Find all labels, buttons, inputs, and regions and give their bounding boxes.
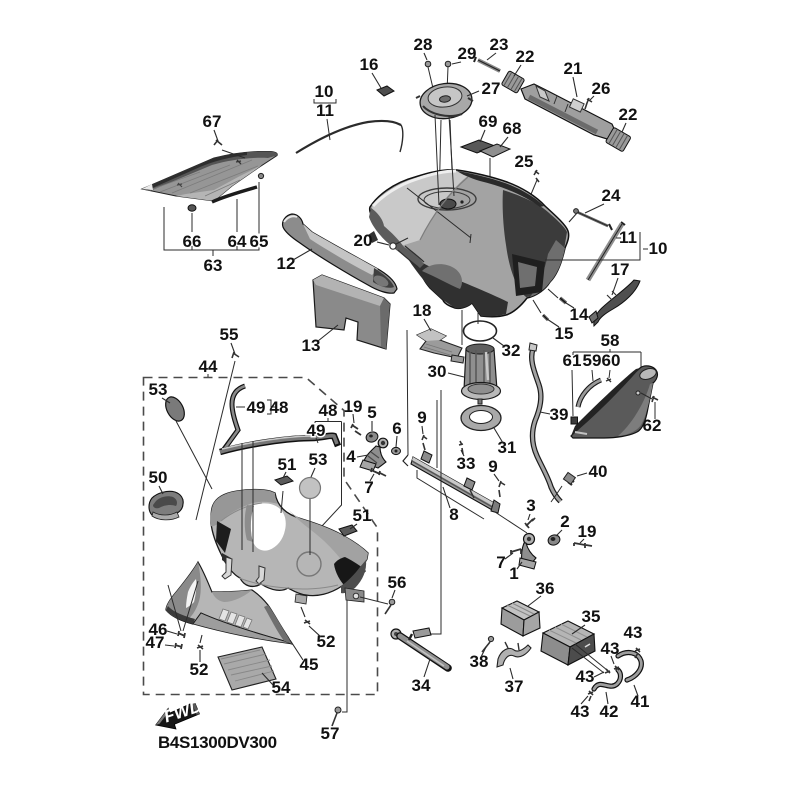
svg-text:25: 25 <box>515 152 534 171</box>
svg-text:62: 62 <box>643 416 662 435</box>
svg-text:4: 4 <box>346 447 356 466</box>
svg-text:55: 55 <box>220 325 239 344</box>
svg-text:43: 43 <box>576 667 595 686</box>
svg-text:52: 52 <box>190 660 209 679</box>
svg-text:20: 20 <box>354 231 373 250</box>
svg-text:6: 6 <box>392 419 401 438</box>
svg-text:53: 53 <box>309 450 328 469</box>
svg-text:7: 7 <box>496 553 505 572</box>
svg-text:B4S1300DV300: B4S1300DV300 <box>158 733 277 752</box>
svg-text:58: 58 <box>601 331 620 350</box>
svg-text:2: 2 <box>560 512 569 531</box>
svg-text:10: 10 <box>649 239 668 258</box>
svg-text:11: 11 <box>619 228 637 247</box>
svg-text:56: 56 <box>388 573 407 592</box>
svg-text:49: 49 <box>247 398 266 417</box>
svg-text:64: 64 <box>228 232 247 251</box>
svg-text:8: 8 <box>449 505 458 524</box>
svg-text:12: 12 <box>277 254 296 273</box>
svg-text:45: 45 <box>300 655 319 674</box>
svg-text:27: 27 <box>482 79 501 98</box>
svg-text:14: 14 <box>570 305 589 324</box>
svg-text:19: 19 <box>578 522 597 541</box>
svg-text:16: 16 <box>360 55 379 74</box>
svg-text:57: 57 <box>321 724 340 743</box>
svg-text:47: 47 <box>146 633 165 652</box>
svg-text:38: 38 <box>470 652 489 671</box>
svg-text:32: 32 <box>502 341 521 360</box>
svg-text:13: 13 <box>302 336 321 355</box>
svg-text:44: 44 <box>199 357 218 376</box>
svg-text:10: 10 <box>315 82 334 101</box>
svg-text:37: 37 <box>505 677 524 696</box>
svg-text:42: 42 <box>600 702 619 721</box>
svg-text:50: 50 <box>149 468 168 487</box>
svg-text:15: 15 <box>555 324 574 343</box>
svg-text:7: 7 <box>364 478 373 497</box>
svg-text:39: 39 <box>550 405 569 424</box>
svg-text:17: 17 <box>611 260 630 279</box>
svg-text:36: 36 <box>536 579 555 598</box>
svg-text:34: 34 <box>412 676 431 695</box>
svg-text:61: 61 <box>563 351 582 370</box>
svg-text:41: 41 <box>631 692 650 711</box>
svg-text:48: 48 <box>319 401 338 420</box>
svg-text:63: 63 <box>204 256 223 275</box>
svg-text:26: 26 <box>592 79 611 98</box>
svg-text:21: 21 <box>564 59 583 78</box>
svg-text:22: 22 <box>516 47 535 66</box>
svg-text:23: 23 <box>490 35 509 54</box>
svg-text:24: 24 <box>602 186 621 205</box>
svg-text:65: 65 <box>250 232 269 251</box>
svg-text:51: 51 <box>353 506 372 525</box>
svg-text:53: 53 <box>149 380 168 399</box>
svg-text:5: 5 <box>367 403 376 422</box>
svg-text:43: 43 <box>601 639 620 658</box>
svg-text:9: 9 <box>488 457 497 476</box>
svg-text:31: 31 <box>498 438 517 457</box>
svg-text:29: 29 <box>458 44 477 63</box>
svg-text:66: 66 <box>183 232 202 251</box>
svg-text:9: 9 <box>417 408 426 427</box>
svg-text:48: 48 <box>270 398 289 417</box>
svg-text:40: 40 <box>589 462 608 481</box>
svg-text:67: 67 <box>203 112 222 131</box>
svg-text:49: 49 <box>307 421 326 440</box>
svg-text:11: 11 <box>316 101 334 120</box>
svg-text:30: 30 <box>428 362 447 381</box>
svg-text:68: 68 <box>503 119 522 138</box>
svg-text:69: 69 <box>479 112 498 131</box>
svg-text:43: 43 <box>571 702 590 721</box>
svg-text:19: 19 <box>344 397 363 416</box>
svg-text:1: 1 <box>509 564 518 583</box>
svg-text:18: 18 <box>413 301 432 320</box>
svg-text:33: 33 <box>457 454 476 473</box>
svg-text:59: 59 <box>583 351 602 370</box>
svg-text:28: 28 <box>414 35 433 54</box>
svg-text:60: 60 <box>602 351 621 370</box>
svg-text:51: 51 <box>278 455 297 474</box>
svg-text:3: 3 <box>526 496 535 515</box>
svg-text:54: 54 <box>272 678 291 697</box>
svg-text:22: 22 <box>619 105 638 124</box>
svg-text:43: 43 <box>624 623 643 642</box>
svg-text:35: 35 <box>582 607 601 626</box>
